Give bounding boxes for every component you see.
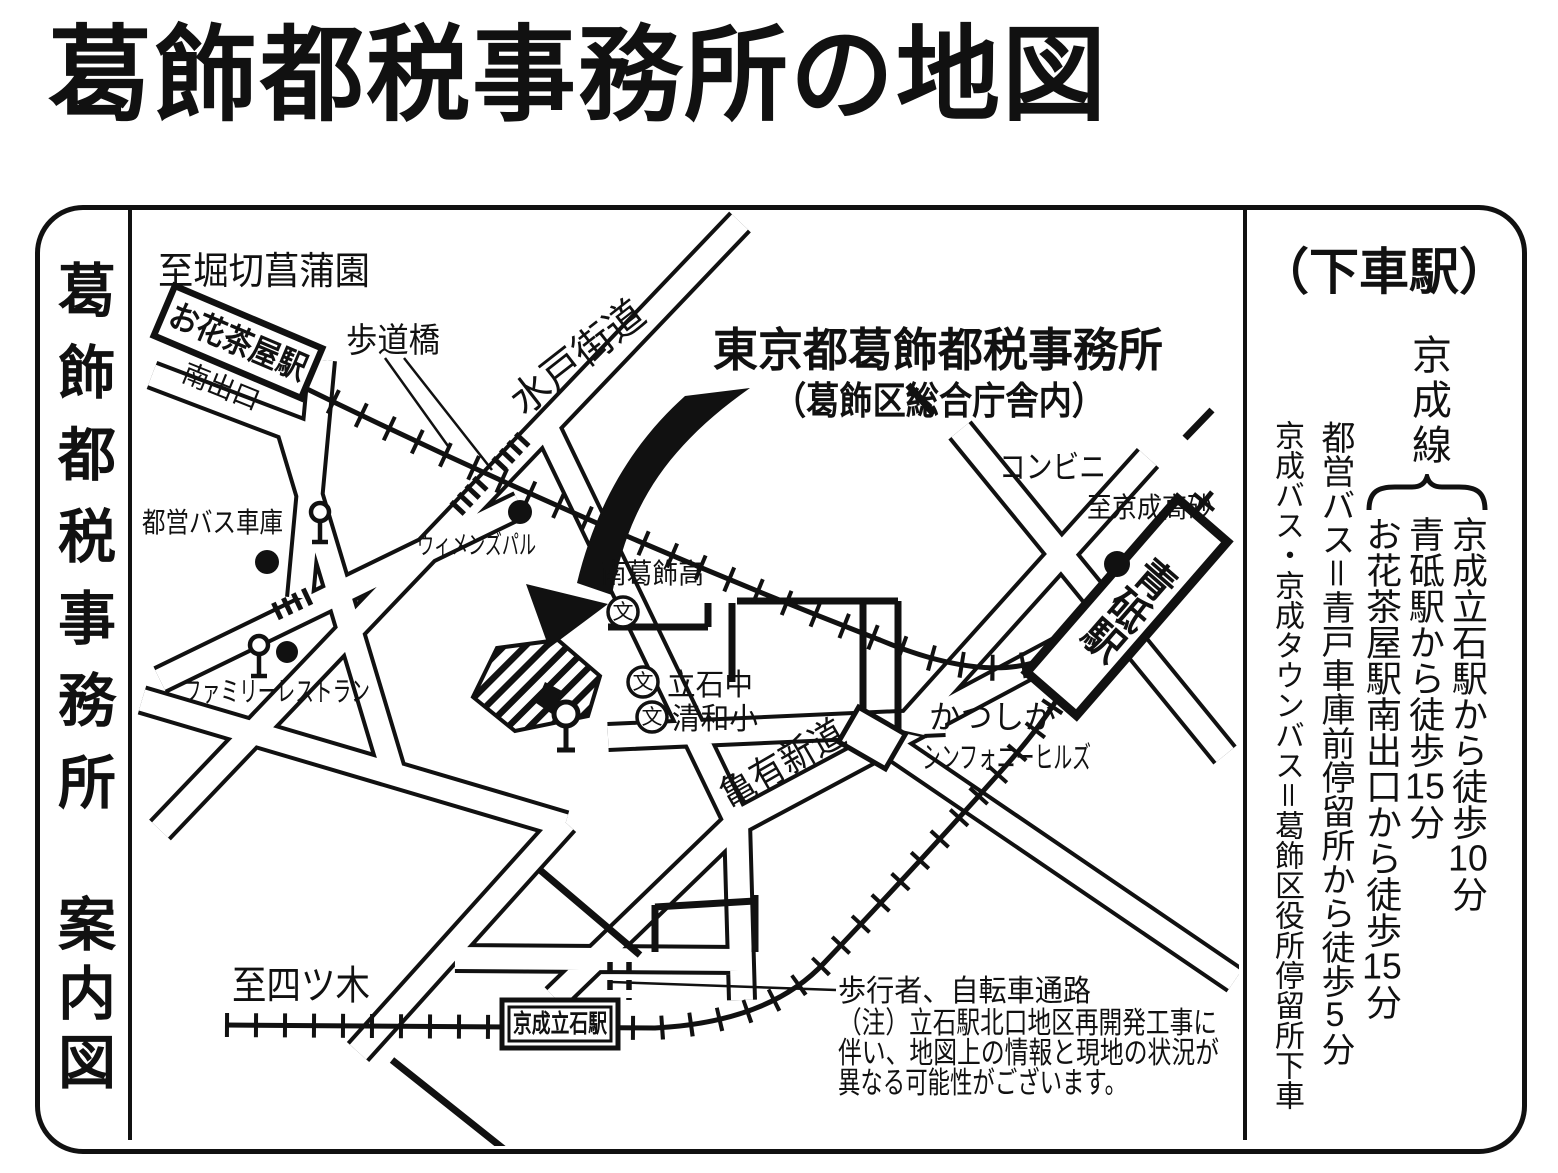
minami-katsushika-high-label: 南葛飾高 <box>601 558 704 589</box>
brace-icon <box>1364 474 1490 512</box>
caution-note-line3: 異なる可能性がございます。 <box>838 1067 1127 1100</box>
bus-route-toei-text: 都営バス＝青戸車庫前停留所から徒歩 <box>1316 420 1354 998</box>
symphony-hills-label-2: シンフォニーヒルズ <box>922 742 1091 775</box>
symphony-hills-label-1: かつしか <box>929 699 1056 735</box>
station-box-tateishi: 京成立石駅 <box>502 1000 618 1048</box>
passage-note-label: 歩行者、自転車通路 <box>838 975 1091 1008</box>
walk-route-tateishi-minutes: 10 <box>1447 840 1488 876</box>
tateishi-junior-high-label: 立石中 <box>667 669 753 702</box>
walk-route-tateishi-text: 京成立石駅から徒歩 <box>1447 516 1488 840</box>
school-mark-seiwa: 文 <box>637 702 667 732</box>
office-callout-line1: 東京都葛飾都税事務所 <box>713 324 1163 376</box>
traffic-light-icon-2 <box>250 636 268 676</box>
walk-route-ohanajaya-unit: 分 <box>1361 984 1402 1020</box>
bus-route-toei-minutes: 5 <box>1316 998 1354 1032</box>
school-mark-text-2: 文 <box>633 671 654 694</box>
caution-note-line2: 伴い、地図上の情報と現地の状況が <box>838 1037 1219 1070</box>
pedestrian-bridge-label: 歩道橋 <box>346 322 440 360</box>
walk-route-ohanajaya: お花茶屋駅南出口から徒歩15分 <box>1363 516 1399 1020</box>
bus-route-toei: 都営バス＝青戸車庫前停留所から徒歩5分 <box>1318 420 1352 1066</box>
page-title: 葛飾都税事務所の地図 <box>48 0 1108 141</box>
bus-depot-label: 都営バス車庫 <box>142 507 283 538</box>
womens-pal-label: ウィメンズパル <box>417 530 536 560</box>
map-canvas: お花茶屋駅 南出口 青砥駅 京成立石駅 <box>134 209 1239 1146</box>
traffic-light-icon-3 <box>554 702 578 750</box>
left-caption-office: 葛飾都税事務所 <box>52 260 110 834</box>
school-mark-text-1: 文 <box>613 601 634 624</box>
family-restaurant-label: ファミリーレストラン <box>183 676 370 707</box>
brace-path <box>1369 477 1485 510</box>
bus-route-keisei: 京成バス・京成タウンバス＝葛飾区役所停留所下車 <box>1271 420 1301 1110</box>
seiwa-elementary-label: 清和小 <box>672 703 758 736</box>
bus-route-keisei-text: 京成バス・京成タウンバス＝葛飾区役所停留所下車 <box>1270 420 1303 1110</box>
page: 葛飾都税事務所の地図 葛飾都税事務所 案内図 （下車駅） 京成線 京成立石駅から… <box>0 0 1558 1173</box>
walk-route-ohanajaya-text: お花茶屋駅南出口から徒歩 <box>1361 516 1402 948</box>
convenience-store-dot <box>1104 551 1130 577</box>
left-caption-guide: 案内図 <box>52 894 110 1101</box>
tax-office-building <box>473 640 600 731</box>
right-panel-divider <box>1243 209 1247 1140</box>
convenience-store-label: コンビニ <box>999 449 1106 485</box>
school-mark-text-3: 文 <box>642 706 663 729</box>
walk-route-aoto: 青砥駅から徒歩15分 <box>1406 516 1442 840</box>
keisei-line-label: 京成線 <box>1408 334 1448 469</box>
walk-route-tateishi: 京成立石駅から徒歩10分 <box>1449 516 1485 912</box>
bus-route-toei-unit: 分 <box>1316 1032 1354 1066</box>
caution-note-line1: （注）立石駅北口地区再開発工事に <box>838 1007 1217 1040</box>
bus-depot-dot <box>255 550 279 574</box>
left-panel-divider <box>128 209 132 1140</box>
womens-pal-dot <box>508 500 532 524</box>
family-restaurant-dot <box>276 641 298 663</box>
direction-label-yotsugi: 至四ツ木 <box>232 964 370 1008</box>
walk-route-ohanajaya-minutes: 15 <box>1361 948 1402 984</box>
exit-stations-header: （下車駅） <box>1248 232 1520 304</box>
walk-route-aoto-minutes: 15 <box>1404 768 1445 804</box>
station-label-tateishi: 京成立石駅 <box>513 1009 607 1038</box>
walk-route-aoto-text: 青砥駅から徒歩 <box>1404 516 1445 768</box>
school-mark-minami-katsushika: 文 <box>608 597 638 627</box>
direction-label-takasago: 至京成高砂 <box>1087 492 1212 523</box>
office-callout-line2: （葛飾区総合庁舎内） <box>773 381 1105 423</box>
locator-arrow-head <box>526 584 608 648</box>
direction-label-horikiri: 至堀切菖蒲園 <box>158 251 370 293</box>
walk-route-tateishi-unit: 分 <box>1447 876 1488 912</box>
walk-route-aoto-unit: 分 <box>1404 804 1445 840</box>
school-mark-tateishi-jr: 文 <box>628 667 658 697</box>
